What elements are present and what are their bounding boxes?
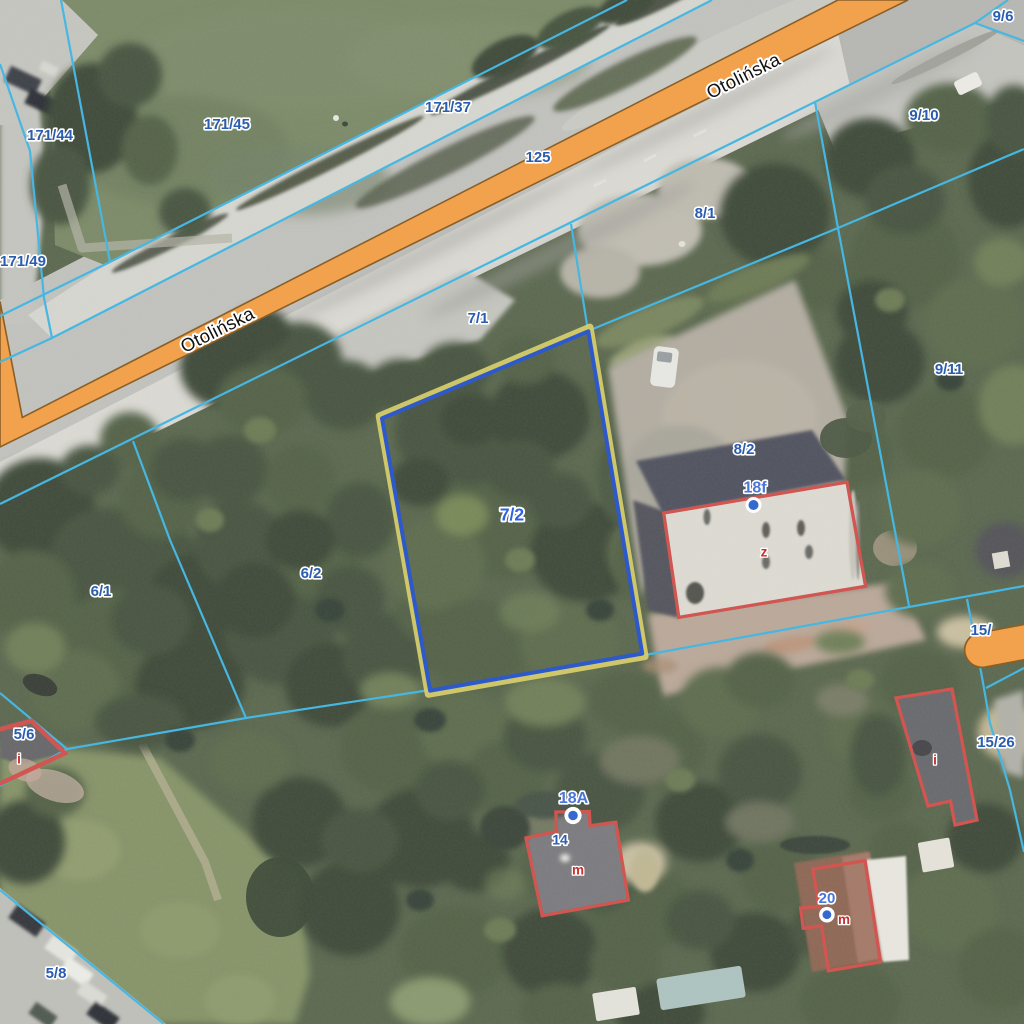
svg-text:7/2: 7/2 (500, 505, 525, 525)
svg-text:i: i (933, 753, 937, 768)
svg-text:8/1: 8/1 (695, 205, 716, 222)
svg-text:6/1: 6/1 (91, 583, 112, 600)
svg-text:20: 20 (819, 890, 836, 907)
svg-text:8/2: 8/2 (734, 441, 755, 458)
svg-text:18f: 18f (743, 480, 767, 497)
svg-text:m: m (572, 863, 584, 878)
svg-text:7/1: 7/1 (468, 310, 489, 327)
svg-text:18A: 18A (559, 790, 589, 807)
svg-text:9/11: 9/11 (935, 361, 963, 378)
svg-text:9/6: 9/6 (993, 8, 1014, 25)
svg-text:6/2: 6/2 (301, 565, 322, 582)
svg-text:171/45: 171/45 (204, 116, 250, 133)
svg-text:5/6: 5/6 (14, 726, 35, 743)
svg-text:171/49: 171/49 (0, 253, 46, 270)
svg-text:z: z (761, 545, 768, 560)
svg-text:m: m (838, 912, 850, 927)
svg-text:15/: 15/ (971, 622, 993, 639)
svg-text:125: 125 (525, 149, 550, 166)
svg-text:9/10: 9/10 (909, 107, 938, 124)
svg-text:14: 14 (552, 832, 568, 848)
svg-text:15/26: 15/26 (977, 734, 1015, 751)
svg-text:171/37: 171/37 (425, 99, 471, 116)
svg-text:i: i (17, 752, 21, 767)
svg-text:171/44: 171/44 (27, 127, 74, 144)
svg-text:5/8: 5/8 (46, 965, 67, 982)
